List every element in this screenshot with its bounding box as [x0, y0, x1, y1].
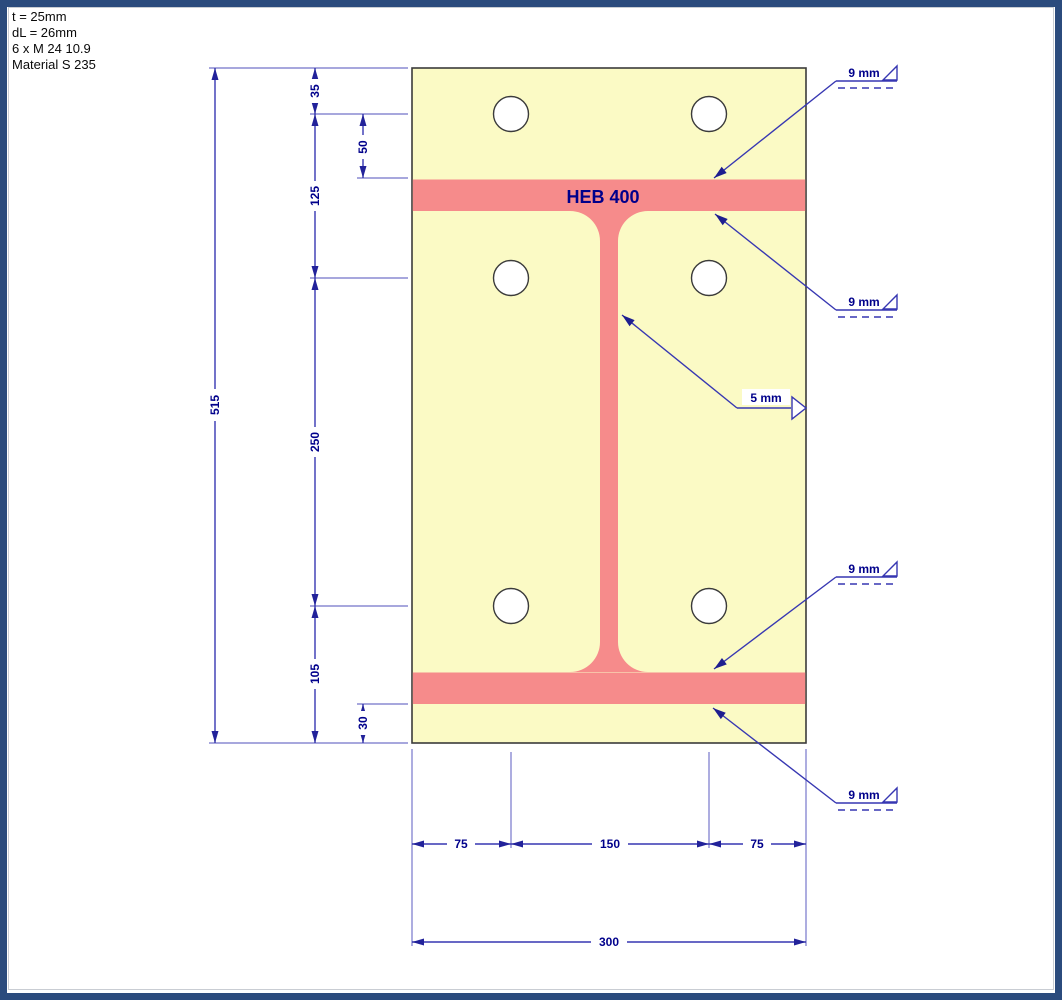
- dim-arrow-icon: [794, 939, 806, 946]
- dim-arrow-icon: [312, 606, 319, 618]
- dim-row3-to-edge: 105: [308, 659, 322, 689]
- dim-arrow-icon: [709, 841, 721, 848]
- parameter-line-thickness: t = 25mm: [12, 9, 67, 24]
- dim-arrow-icon: [212, 68, 219, 80]
- weld-size-label: 9 mm: [848, 66, 879, 80]
- dim-value: 150: [600, 837, 620, 851]
- bolt-hole: [494, 261, 529, 296]
- dim-col-mid: 150: [592, 837, 628, 851]
- dim-col-left: 75: [447, 837, 475, 851]
- dim-arrow-icon: [312, 266, 319, 278]
- dim-arrow-icon: [499, 841, 511, 848]
- dim-arrow-icon: [312, 594, 319, 606]
- dim-arrow-icon: [511, 841, 523, 848]
- dim-value: 50: [356, 140, 370, 154]
- weld-size-label: 9 mm: [848, 295, 879, 309]
- parameters-note: t = 25mm dL = 26mm 6 x M 24 10.9 Materia…: [12, 9, 96, 72]
- bolt-hole: [692, 97, 727, 132]
- dim-arrow-icon: [360, 114, 367, 126]
- fillet-weld-symbol-icon: [883, 788, 897, 802]
- dim-arrow-icon: [312, 102, 319, 114]
- beam-section-label: HEB 400: [566, 187, 639, 207]
- beam-bottom-flange: [413, 673, 805, 705]
- bolt-hole: [494, 97, 529, 132]
- dim-value: 515: [208, 395, 222, 415]
- weld-size-label: 9 mm: [848, 788, 879, 802]
- dim-value: 75: [454, 837, 468, 851]
- dim-arrow-icon: [794, 841, 806, 848]
- dim-row1-to-row2: 125: [308, 181, 322, 211]
- dim-arrow-icon: [312, 278, 319, 290]
- dim-col-right: 75: [743, 837, 771, 851]
- parameter-line-hole: dL = 26mm: [12, 25, 77, 40]
- fillet-weld-symbol-icon: [883, 295, 897, 309]
- dim-value: 300: [599, 935, 619, 949]
- connection-drawing-canvas: t = 25mm dL = 26mm 6 x M 24 10.9 Materia…: [0, 0, 1062, 1000]
- drawing-viewport: t = 25mm dL = 26mm 6 x M 24 10.9 Materia…: [0, 0, 1062, 1000]
- fillet-weld-symbol-icon: [883, 562, 897, 576]
- dim-arrow-icon: [312, 114, 319, 126]
- dim-arrow-icon: [412, 939, 424, 946]
- dim-value: 30: [356, 716, 370, 730]
- dim-arrow-icon: [212, 731, 219, 743]
- dim-value: 105: [308, 664, 322, 684]
- bolt-hole: [692, 589, 727, 624]
- dim-row1-to-flange: 50: [356, 135, 370, 159]
- dim-arrow-icon: [312, 68, 319, 80]
- dim-arrow-icon: [412, 841, 424, 848]
- dim-total-width: 300: [591, 935, 627, 949]
- dim-arrow-icon: [697, 841, 709, 848]
- dim-value: 250: [308, 432, 322, 452]
- dim-value: 35: [308, 84, 322, 98]
- parameter-line-bolts: 6 x M 24 10.9: [12, 41, 91, 56]
- fillet-weld-symbol-icon: [883, 66, 897, 80]
- dim-arrow-icon: [312, 731, 319, 743]
- dim-arrow-icon: [360, 166, 367, 178]
- dim-value: 75: [750, 837, 764, 851]
- dim-row2-to-row3: 250: [308, 427, 322, 457]
- bolt-hole: [494, 589, 529, 624]
- dim-edge-to-row1: 35: [308, 79, 322, 103]
- weld-size-label: 5 mm: [750, 391, 781, 405]
- bolt-hole: [692, 261, 727, 296]
- weld-size-label: 9 mm: [848, 562, 879, 576]
- dim-flange-to-edge: 30: [356, 711, 370, 735]
- dim-value: 125: [308, 186, 322, 206]
- parameter-line-material: Material S 235: [12, 57, 96, 72]
- dim-total-height: 515: [208, 389, 222, 421]
